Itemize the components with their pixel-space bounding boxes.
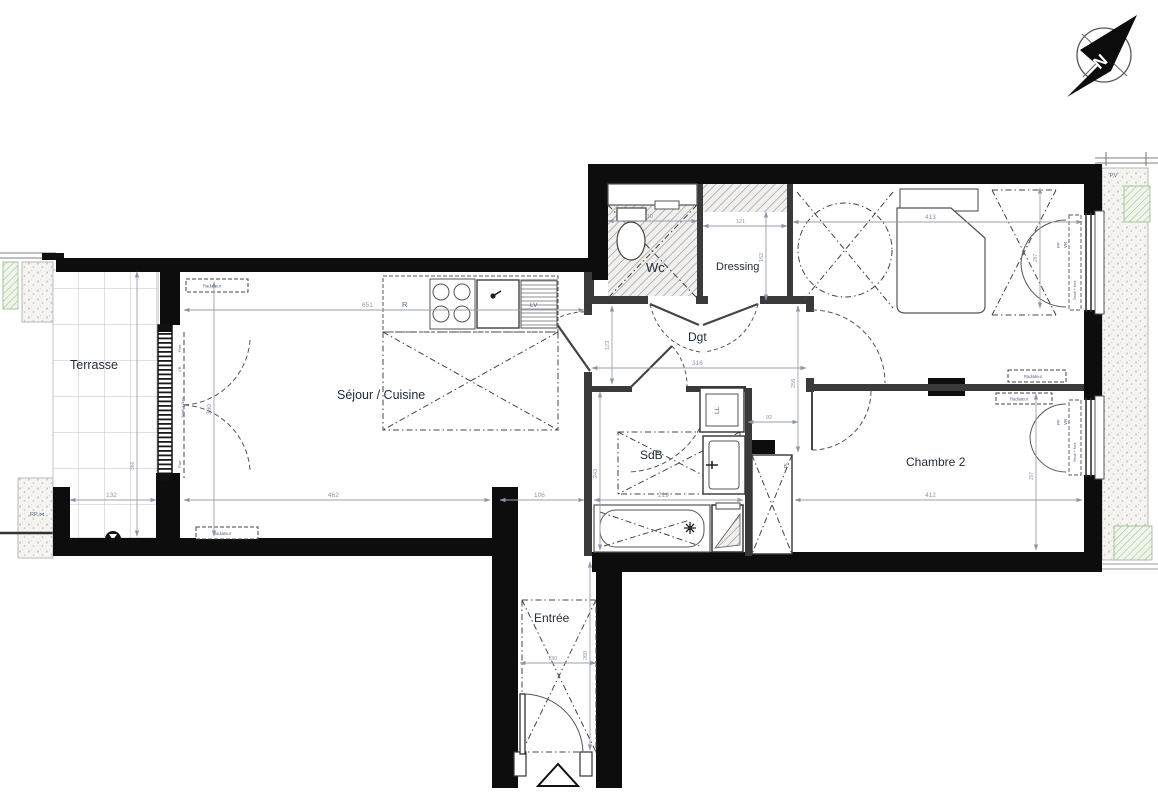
dim-chambre2-w: 412 [925, 492, 936, 499]
entry-marker-triangle [538, 764, 578, 786]
kitchen-sink [477, 280, 519, 328]
vr-label-ch1: VR [1063, 241, 1068, 248]
radiator-sejour-bottom-label: Radiateur [213, 531, 232, 536]
dim-terrasse-w: 132 [106, 492, 117, 499]
dim-sejour-h: 360 [206, 404, 213, 415]
chambre2-door-swing [812, 391, 871, 450]
dim-dgt-w: 316 [692, 360, 703, 367]
wc-room: Wc [608, 184, 697, 298]
planter-left-top [3, 262, 18, 309]
door-jamb-right [580, 752, 592, 776]
dim-chambre2-win: 207 [1029, 471, 1035, 480]
planter-right-bottom [1114, 526, 1152, 560]
dim-entree-h: 260 [583, 651, 589, 660]
rp-label: RP ⋈ [30, 512, 45, 518]
dim-chambre1-win: 287 [1033, 253, 1039, 262]
seuil-bay-label: Seuil + Nez [180, 397, 185, 418]
chambre1-door-swing [812, 310, 885, 383]
placard-label: Pl. [784, 462, 790, 468]
dgt-label: Dgt [688, 330, 707, 344]
technical-shaft [712, 503, 743, 552]
dim-dgt-h-left: 123 [605, 341, 611, 350]
radiator-sejour-top-label: Radiateur [203, 284, 222, 289]
dim-sdb-w: 219 [658, 492, 669, 499]
gravel-left-top [22, 262, 53, 322]
sdb-door [630, 346, 672, 388]
entry-door-leaf [520, 694, 525, 754]
seuil-label-ch1: Seuil + Nez [1073, 280, 1077, 300]
terrasse-label: Terrasse [70, 358, 118, 372]
north-compass: N [1067, 15, 1137, 97]
dim-dressing-h: 162 [759, 253, 765, 262]
dressing-soffit [703, 184, 787, 212]
dim-sdb-h: 243 [593, 469, 599, 478]
dishwasher: LV [521, 280, 557, 328]
bed [897, 189, 985, 313]
cooktop [430, 279, 475, 329]
fixe-bottom-label: Fixe [177, 460, 182, 468]
entree-label: Entrée [534, 611, 570, 625]
sdb-room: SdB LL [594, 388, 745, 552]
wc-dressing-doors [650, 304, 758, 325]
dishwasher-label: LV [530, 302, 538, 309]
chambre2-room: Chambre 2 Radiateur [906, 393, 1052, 469]
pf-label-ch2: PF [1056, 419, 1061, 425]
dim-wc-w: 110 [644, 214, 653, 220]
wc-label: Wc [646, 260, 665, 275]
placard-closet: Pl. [752, 455, 792, 554]
washing-machine: LL [700, 388, 744, 432]
vanity-sink [703, 436, 745, 494]
dim-dgt-h-right: 256 [791, 379, 797, 388]
dim-terrasse-h: 366 [130, 461, 136, 470]
dim-sejour-w: 651 [362, 302, 373, 309]
dim-ll-offset: 92 [766, 415, 772, 421]
radiator-ch1-label: Radiateur [1024, 374, 1043, 379]
dim-passage: 106 [534, 492, 545, 499]
radiator-ch2-label: Radiateur [1010, 397, 1029, 402]
fridge-label: R [402, 300, 408, 309]
vr-label-ch2: VR [1063, 418, 1068, 425]
gravel-right-band [1102, 168, 1148, 560]
sejour-label: Séjour / Cuisine [337, 388, 425, 402]
dim-dressing-w: 121 [736, 219, 745, 225]
planter-right-top [1124, 186, 1150, 222]
dim-chambre1-w: 413 [925, 214, 936, 221]
chambre2-label: Chambre 2 [906, 455, 966, 469]
washer-label: LL [714, 406, 721, 414]
dim-sejour-bottom: 462 [328, 492, 339, 499]
sliding-bay-window: Fixe VR Seuil + Nez Fixe [158, 325, 250, 480]
vr-bay-label: VR [177, 366, 182, 372]
sejour-door [554, 320, 590, 371]
window-chambre2: PF VR Seuil + Nez [1030, 396, 1104, 479]
floor-plan-drawing: RP ⋈ PV Terrasse [0, 0, 1158, 800]
sdb-label: SdB [640, 448, 663, 462]
dim-entree-w: 130 [548, 656, 557, 662]
fixe-top-label: Fixe [177, 344, 182, 352]
dressing-room: Dressing [703, 184, 787, 273]
toilet-tank [617, 208, 646, 221]
bathtub [594, 505, 710, 552]
entree-hall: Entrée [514, 600, 596, 786]
door-jamb-left [514, 752, 526, 776]
pv-label: PV [1110, 173, 1118, 179]
pf-label-ch1: PF [1056, 242, 1061, 248]
gravel-left-bottom [18, 478, 53, 558]
seuil-label-ch2: Seuil + Nez [1073, 442, 1077, 462]
wc-shelf [608, 184, 697, 205]
dressing-label: Dressing [716, 261, 759, 273]
floor-plan-canvas: RP ⋈ PV Terrasse [0, 0, 1158, 800]
toilet-bowl [617, 222, 645, 260]
